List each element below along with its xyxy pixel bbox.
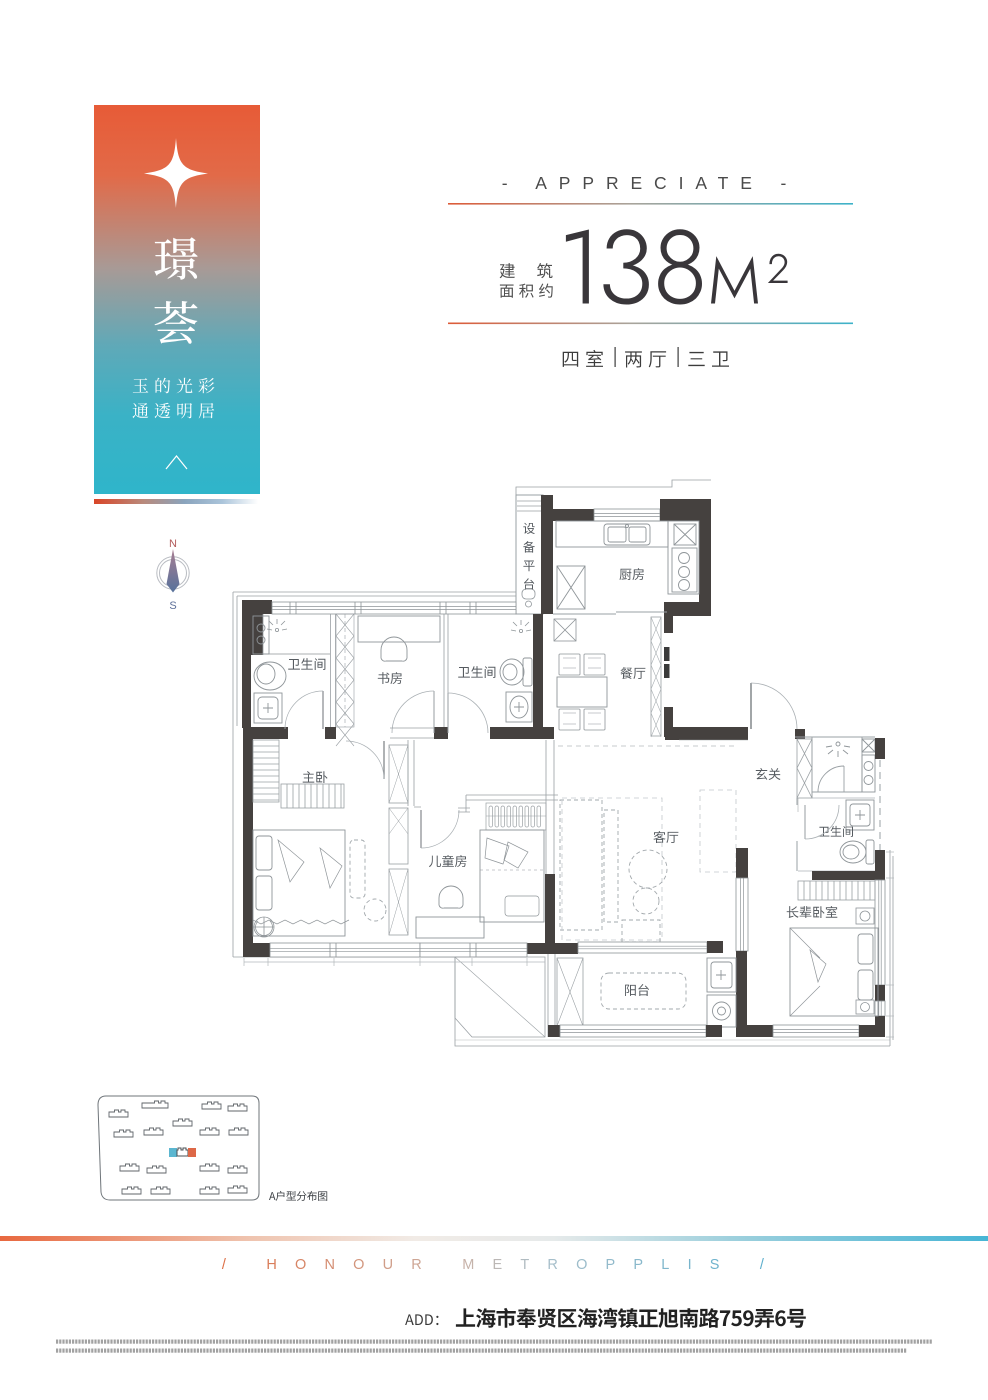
svg-text:S: S [169,600,176,612]
svg-text:/ HONOUR METROPPLIS /: / HONOUR METROPPLIS / [222,1257,782,1273]
svg-text:- APPRECIATE -: - APPRECIATE - [502,173,799,193]
svg-text:N: N [169,538,177,550]
